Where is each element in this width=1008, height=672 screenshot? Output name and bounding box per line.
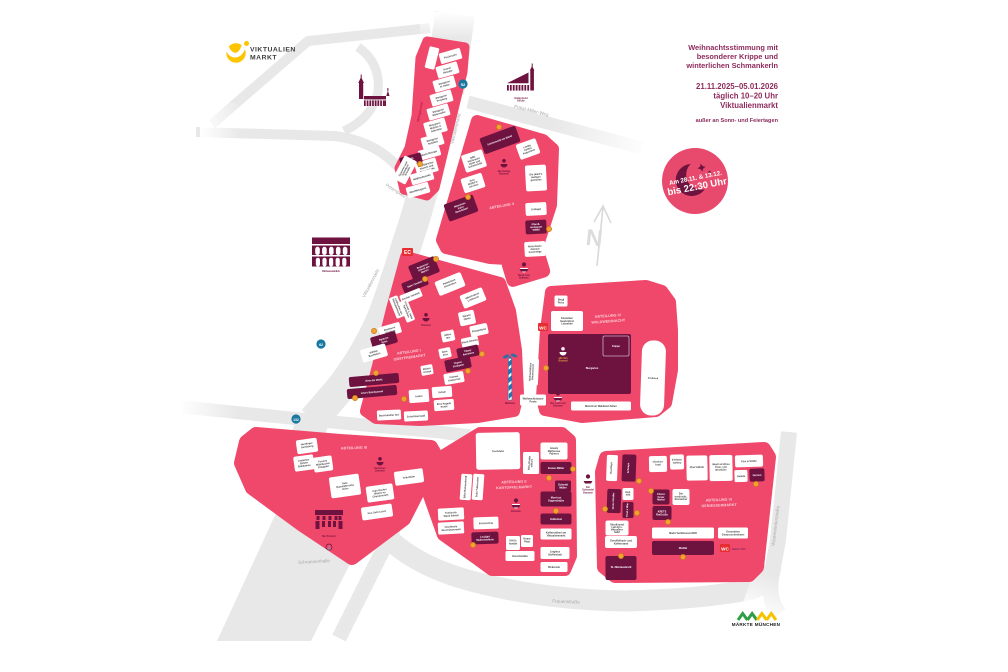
svg-text:Ged.ettü: Ged.ettü	[625, 491, 631, 497]
svg-text:SchmidtMüller: SchmidtMüller	[558, 484, 568, 490]
svg-text:KnaurPlatz: KnaurPlatz	[523, 538, 530, 544]
svg-text:KastanienGewürzbrotLebzelten: KastanienGewürzbrotLebzelten	[560, 317, 574, 326]
svg-text:Frauenstraße: Frauenstraße	[552, 599, 580, 605]
svg-text:BerglPelss: BerglPelss	[558, 299, 565, 305]
svg-text:TeshirolisWand Blendl: TeshirolisWand Blendl	[443, 511, 459, 518]
svg-text:Schufi: Schufi	[438, 391, 446, 395]
svg-text:alle 3telBrunnal: alle 3telBrunnal	[558, 357, 567, 363]
svg-text:Schnaps: Schnaps	[627, 462, 630, 473]
svg-text:Markt Veriklässiva NHD: Markt Veriklässiva NHD	[669, 532, 697, 535]
svg-text:Kerzenshop: Kerzenshop	[479, 522, 494, 526]
svg-text:Bergl-AnisBrunnen: Bergl-AnisBrunnen	[518, 274, 531, 280]
svg-text:Der Pschorr: Der Pschorr	[322, 535, 336, 538]
svg-text:Essien Müller: Essien Müller	[548, 467, 564, 470]
svg-text:Kaffeestüberl amViktualienmark: Kaffeestüberl amViktualienmarkt	[546, 532, 567, 538]
svg-text:Wrelbb: Wrelbb	[679, 547, 688, 550]
svg-text:Brunnen: Brunnen	[511, 510, 521, 513]
svg-text:Tischdeko: Tischdeko	[492, 450, 505, 453]
svg-text:S'tod a Wiar: S'tod a Wiar	[626, 503, 629, 517]
svg-text:EridasinGaltery: EridasinGaltery	[672, 458, 682, 464]
svg-text:Pfan'lsWöbr: Pfan'lsWöbr	[690, 466, 705, 469]
svg-text:Freibank: Freibank	[648, 377, 659, 380]
svg-text:21.11.2025–05.01.2026: 21.11.2025–05.01.2026	[696, 82, 779, 91]
svg-text:Münchner Waldland Zelten: Münchner Waldland Zelten	[585, 405, 617, 408]
svg-text:Viktualienmarkt: Viktualienmarkt	[720, 101, 778, 110]
svg-text:WC: WC	[721, 546, 729, 551]
svg-text:MARKT: MARKT	[250, 55, 277, 62]
svg-text:brabü: brabü	[415, 395, 423, 399]
svg-text:N: N	[585, 224, 604, 252]
svg-text:Honsdorialks: Honsdorialks	[512, 555, 528, 558]
svg-text:52: 52	[461, 82, 466, 87]
svg-text:winterlichen Schmankerln: winterlichen Schmankerln	[685, 61, 778, 70]
svg-text:besonderer Krippe und: besonderer Krippe und	[697, 52, 779, 61]
svg-text:Bickerneb: Bickerneb	[548, 566, 561, 569]
svg-text:Markt WC: Markt WC	[732, 547, 747, 551]
svg-text:⚓: ⚓	[327, 545, 332, 550]
svg-text:Gürmst: Gürmst	[752, 474, 761, 477]
svg-text:St. Nikolausbrettl: St. Nikolausbrettl	[611, 566, 632, 569]
svg-text:LeightssStoffelstadt: LeightssStoffelstadt	[548, 551, 562, 557]
svg-text:MÄRKTE MÜNCHEN: MÄRKTE MÜNCHEN	[732, 621, 781, 627]
svg-text:Lintlagel: Lintlagel	[531, 208, 542, 212]
svg-text:EC: EC	[404, 250, 411, 256]
svg-text:Rathausanblick: Rathausanblick	[322, 270, 340, 273]
svg-text:Gines Schüler: Gines Schüler	[612, 493, 616, 510]
svg-text:Brunnen: Brunnen	[421, 324, 431, 327]
svg-text:Biergarten: Biergarten	[586, 367, 599, 370]
svg-text:VIKTUALIEN: VIKTUALIEN	[250, 47, 296, 54]
svg-text:Weihnachtsstimmung mit: Weihnachtsstimmung mit	[688, 43, 778, 52]
svg-text:UHU'shandln: UHU'shandln	[509, 540, 518, 546]
svg-text:Flos & Wolke: Flos & Wolke	[741, 460, 757, 464]
svg-text:täglich 10–20 Uhr: täglich 10–20 Uhr	[713, 92, 778, 101]
svg-text:KastanienBrunnen: KastanienBrunnen	[374, 467, 386, 473]
svg-text:Galada: Galada	[737, 475, 746, 478]
svg-text:62: 62	[319, 343, 323, 347]
svg-text:Maibaum: Maibaum	[505, 402, 515, 405]
svg-text:ChocoFeyerMarrsl: ChocoFeyerMarrsl	[657, 493, 665, 502]
svg-text:außer an Sonn- und Feiertagen: außer an Sonn- und Feiertagen	[696, 118, 779, 124]
svg-text:Krippe: Krippe	[612, 345, 621, 348]
svg-text:WeihnachtlicheBaumstriezel: WeihnachtlicheBaumstriezel	[529, 362, 535, 381]
svg-text:Ros'Maya: Ros'Maya	[610, 462, 613, 474]
svg-text:WC: WC	[539, 325, 547, 330]
svg-text:132: 132	[293, 418, 299, 422]
svg-text:Gütterlesl: Gütterlesl	[550, 518, 562, 521]
